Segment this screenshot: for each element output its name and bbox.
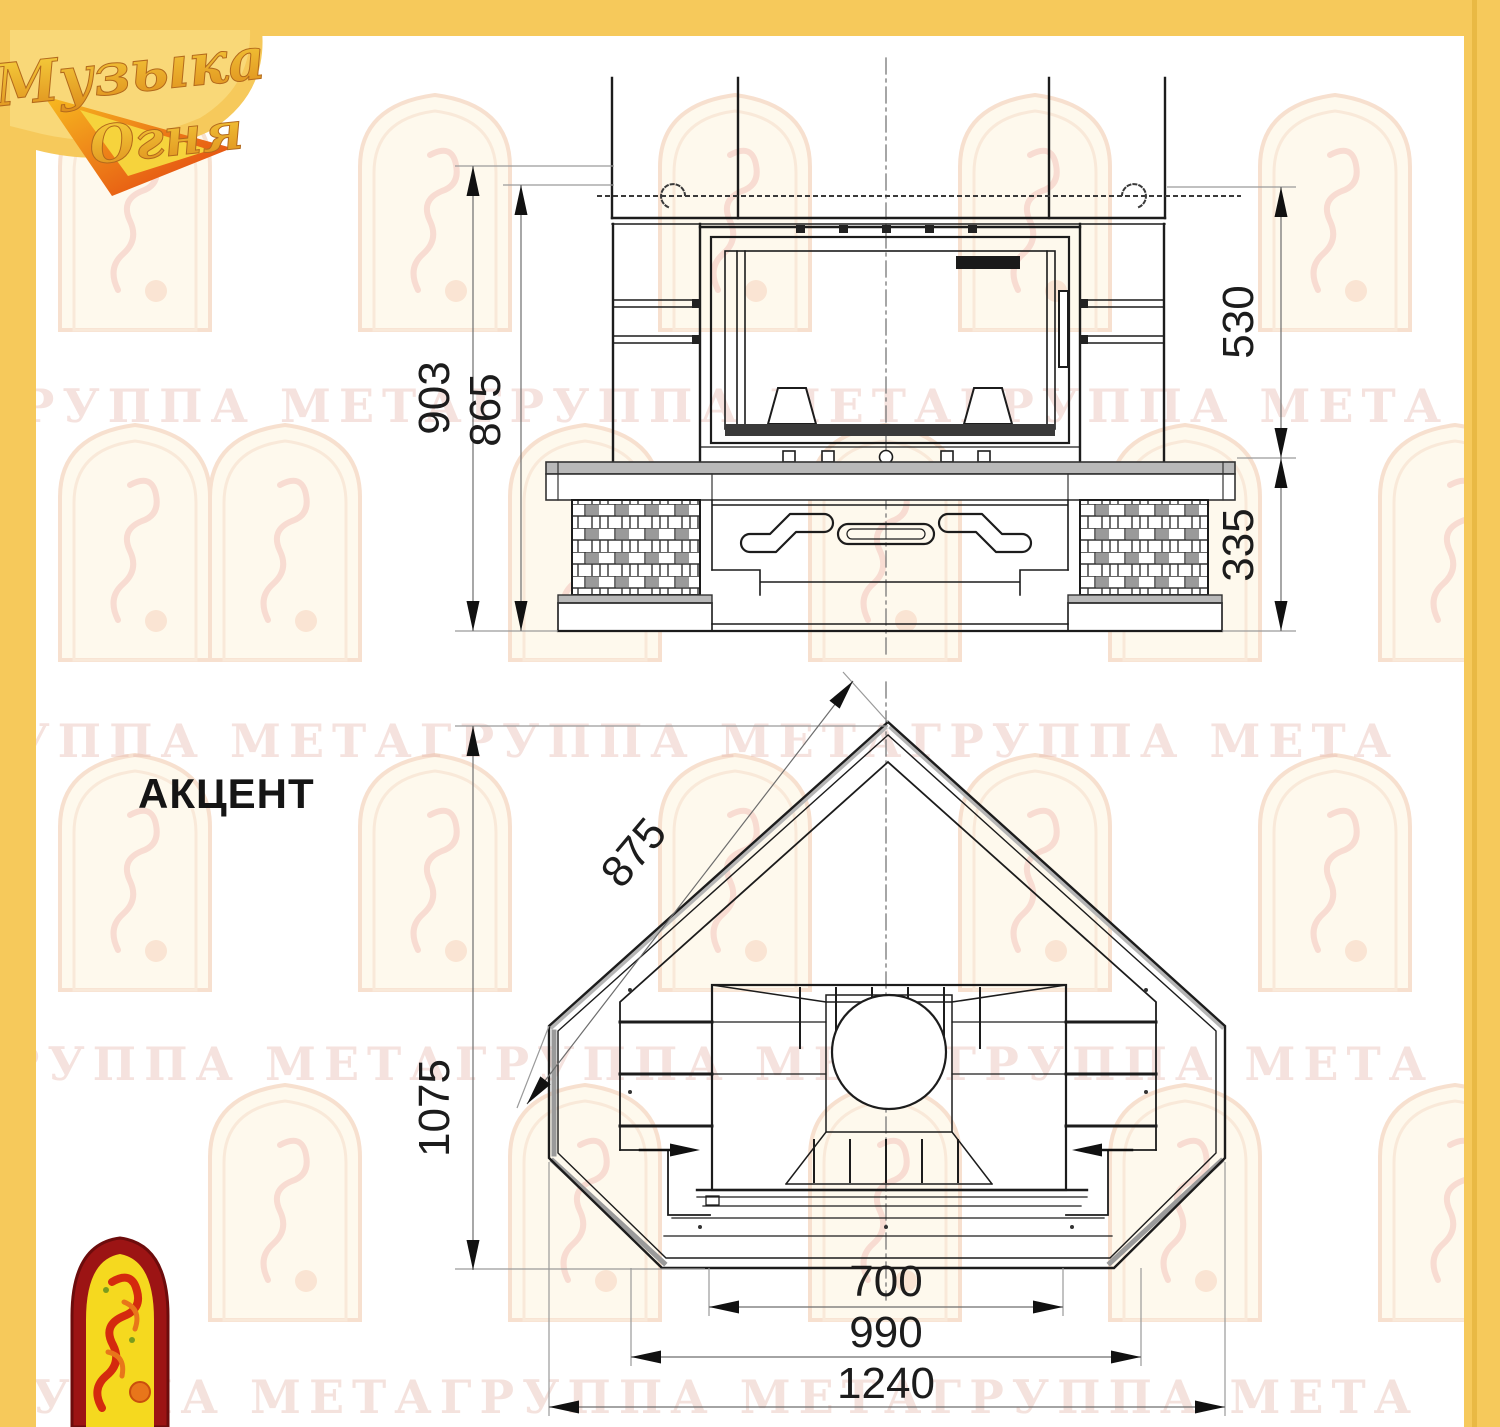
dim-label-865: 865 bbox=[461, 373, 510, 446]
dim-label-1240: 1240 bbox=[837, 1359, 935, 1408]
door-handle bbox=[1059, 291, 1068, 367]
dim-label-990: 990 bbox=[849, 1308, 922, 1357]
brick-pier-right bbox=[1080, 500, 1208, 595]
dim-label-530: 530 bbox=[1214, 285, 1263, 358]
insert-brand-label bbox=[956, 256, 1020, 269]
dim-label-903: 903 bbox=[410, 361, 459, 434]
watermark-row: ГРУППА МЕТАГРУППА МЕТАГРУППА МЕТА bbox=[0, 1370, 1419, 1424]
dim-label-700: 700 bbox=[849, 1257, 922, 1306]
dim-label-1075: 1075 bbox=[410, 1059, 459, 1157]
meta-emblem bbox=[72, 1238, 168, 1427]
watermark-row: ГРУППА МЕТАГРУППА МЕТАГРУППА МЕТА bbox=[0, 714, 1399, 768]
dim-label-335: 335 bbox=[1214, 508, 1263, 581]
technical-drawing: ГРУППА МЕТАГРУППА МЕТАГРУППА МЕТА ГРУППА… bbox=[0, 0, 1500, 1427]
fireplace-dimension-sheet: ГРУППА МЕТАГРУППА МЕТАГРУППА МЕТА ГРУППА… bbox=[0, 0, 1500, 1427]
model-name: АКЦЕНТ bbox=[138, 770, 315, 817]
watermark-row: ГРУППА МЕТАГРУППА МЕТАГРУППА МЕТА bbox=[0, 1037, 1434, 1091]
flue-outlet bbox=[832, 995, 946, 1109]
brick-pier-left bbox=[572, 500, 700, 595]
